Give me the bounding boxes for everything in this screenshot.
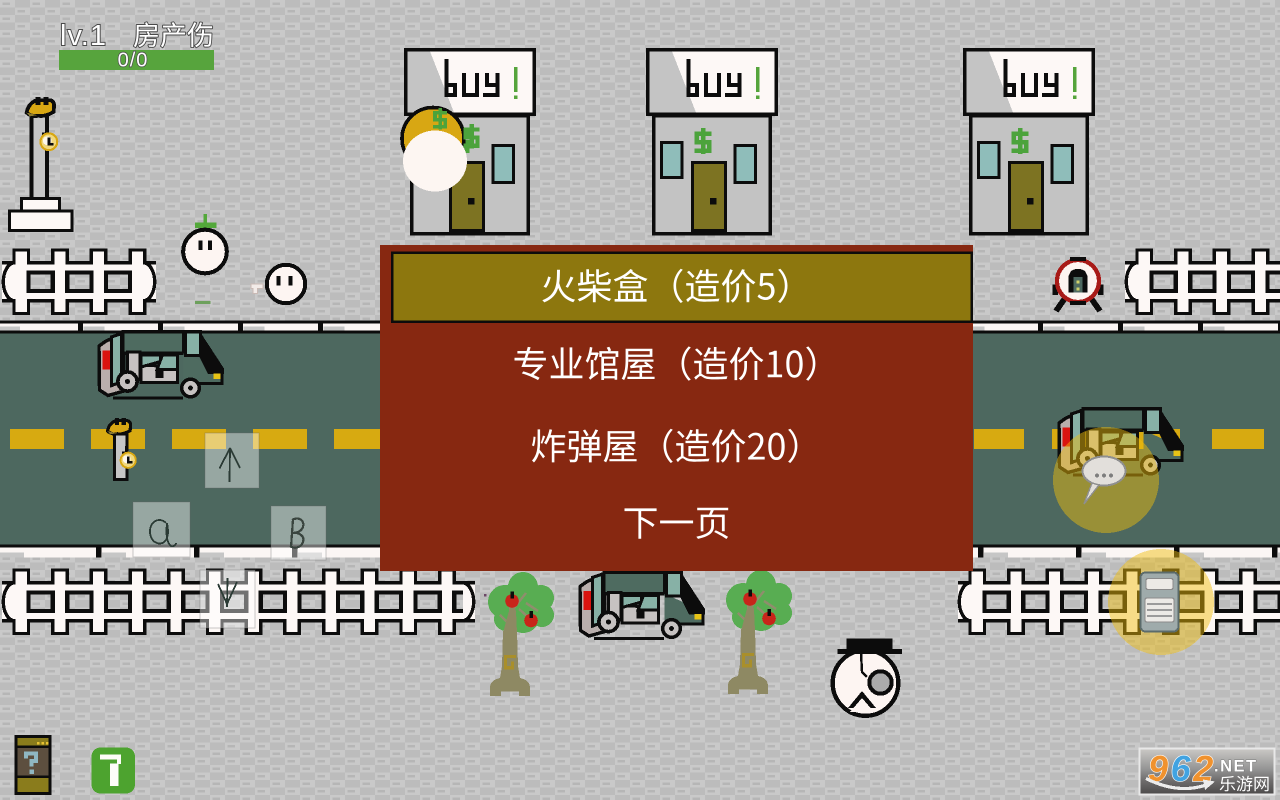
svg-text:lv.1: lv.1 xyxy=(60,20,107,52)
svg-text:0/0: 0/0 xyxy=(118,50,149,72)
svg-text:.NET: .NET xyxy=(1214,758,1258,776)
